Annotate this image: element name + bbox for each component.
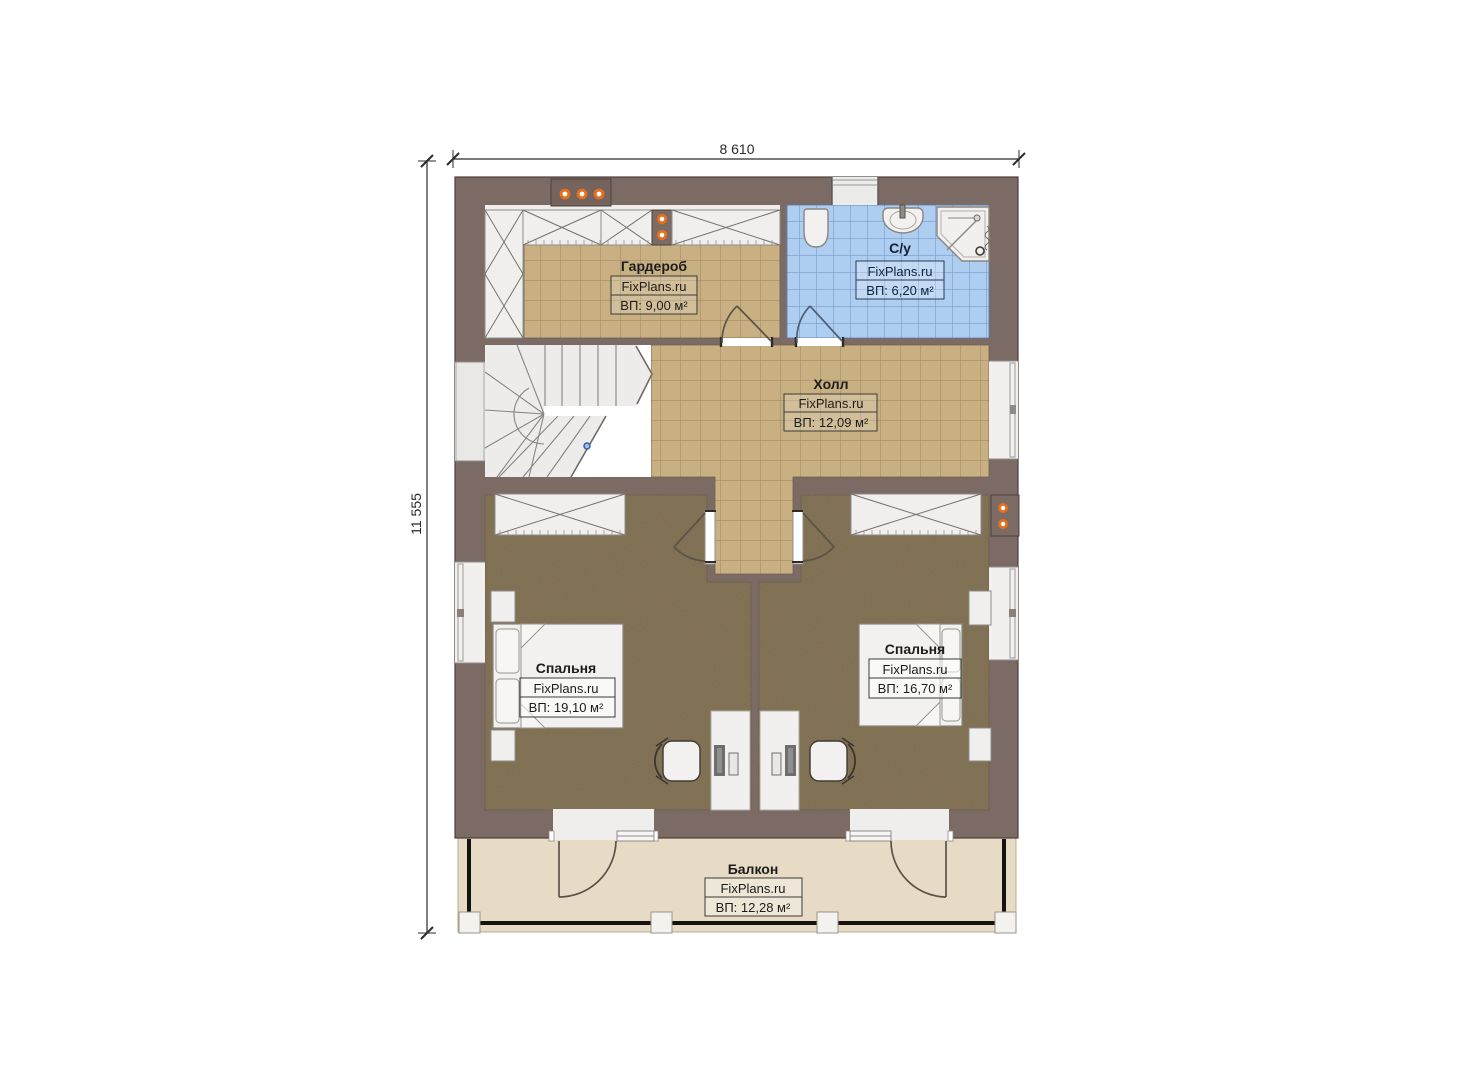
svg-text:FixPlans.ru: FixPlans.ru [533, 681, 598, 696]
svg-text:Спальня: Спальня [536, 660, 596, 676]
svg-text:Балкон: Балкон [728, 861, 779, 877]
svg-text:11 555: 11 555 [408, 493, 424, 535]
svg-text:FixPlans.ru: FixPlans.ru [798, 396, 863, 411]
svg-text:FixPlans.ru: FixPlans.ru [621, 279, 686, 294]
svg-text:ВП: 9,00 м²: ВП: 9,00 м² [620, 298, 688, 313]
svg-text:ВП: 12,09 м²: ВП: 12,09 м² [794, 415, 869, 430]
svg-text:ВП: 19,10 м²: ВП: 19,10 м² [529, 700, 604, 715]
svg-text:С/у: С/у [889, 240, 911, 256]
svg-text:Спальня: Спальня [885, 641, 945, 657]
svg-text:FixPlans.ru: FixPlans.ru [882, 662, 947, 677]
svg-text:ВП: 16,70 м²: ВП: 16,70 м² [878, 681, 953, 696]
svg-text:FixPlans.ru: FixPlans.ru [720, 881, 785, 896]
svg-text:Холл: Холл [813, 376, 848, 392]
svg-text:ВП: 12,28 м²: ВП: 12,28 м² [716, 900, 791, 915]
svg-text:ВП: 6,20 м²: ВП: 6,20 м² [866, 283, 934, 298]
svg-text:8 610: 8 610 [719, 141, 754, 157]
svg-text:FixPlans.ru: FixPlans.ru [867, 264, 932, 279]
svg-text:Гардероб: Гардероб [621, 258, 688, 274]
